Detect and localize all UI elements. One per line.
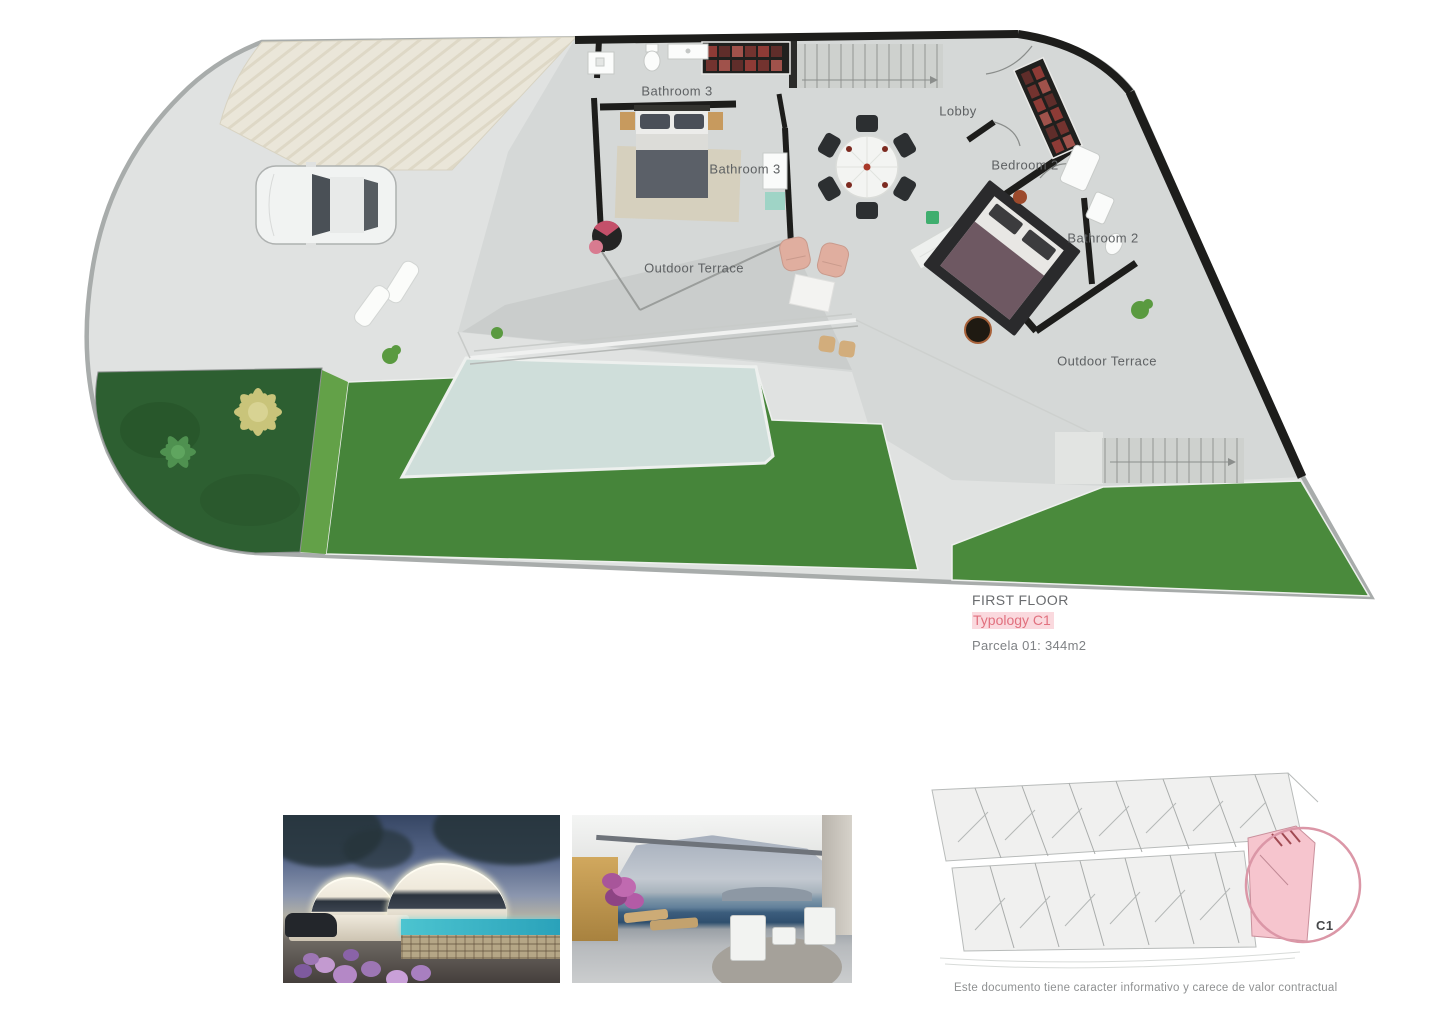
typology-label: Typology C1: [972, 612, 1054, 629]
brochure-page: { "plan": { "labels": [ {"text": "Bathro…: [0, 0, 1440, 1024]
car-silhouette: [285, 913, 337, 937]
stairs-upper: [789, 40, 943, 88]
plan-group: [87, 33, 1371, 597]
site-highlight-unit: [1248, 826, 1315, 941]
terrace-render-photo: [572, 815, 852, 983]
stone-wall: [401, 935, 560, 959]
room-label-bathroom3-top: Bathroom 3: [641, 84, 712, 99]
plan-info-block: FIRST FLOOR Typology C1 Parcela 01: 344m…: [972, 592, 1086, 654]
room-label-outdoor-terrace-right: Outdoor Terrace: [1057, 354, 1157, 369]
flower-cluster: [303, 953, 319, 965]
room-label-bathroom3-mid: Bathroom 3: [709, 162, 780, 177]
bougainvillea: [602, 873, 622, 889]
site-road-lines: [940, 952, 1300, 968]
floor-title: FIRST FLOOR: [972, 592, 1086, 610]
side-table: [965, 317, 991, 343]
stairs-lower: [1055, 432, 1244, 484]
lounger: [650, 917, 699, 930]
site-plan-group: [932, 773, 1360, 968]
headland: [722, 887, 812, 901]
room-label-lobby: Lobby: [939, 104, 976, 119]
disclaimer-text: Este documento tiene caracter informativ…: [954, 982, 1337, 994]
room-label-bathroom2: Bathroom 2: [1067, 231, 1138, 246]
swimming-pool: [402, 358, 773, 477]
hill-silhouette: [433, 815, 560, 865]
dark-garden: [96, 368, 322, 553]
pool-strip: [401, 919, 560, 935]
yellow-wall: [572, 857, 618, 941]
white-chair: [730, 915, 766, 961]
room-label-bedroom2: Bedroom 2: [991, 158, 1058, 173]
wardrobe-top: [702, 42, 790, 74]
pendant-lamp: [1013, 190, 1027, 204]
exterior-render-photo: [283, 815, 560, 983]
typology-highlight: Typology C1: [972, 611, 1086, 631]
white-chair: [804, 907, 836, 945]
site-unit-label: C1: [1316, 918, 1334, 933]
side-table: [772, 927, 796, 945]
car: [256, 162, 396, 248]
villa-volume-right: [387, 863, 507, 921]
parcel-area-label: Parcela 01: 344m2: [972, 638, 1086, 654]
room-label-outdoor-terrace-left: Outdoor Terrace: [644, 261, 744, 276]
palm-silhouette: [343, 829, 413, 869]
agave-plant: [234, 388, 282, 436]
